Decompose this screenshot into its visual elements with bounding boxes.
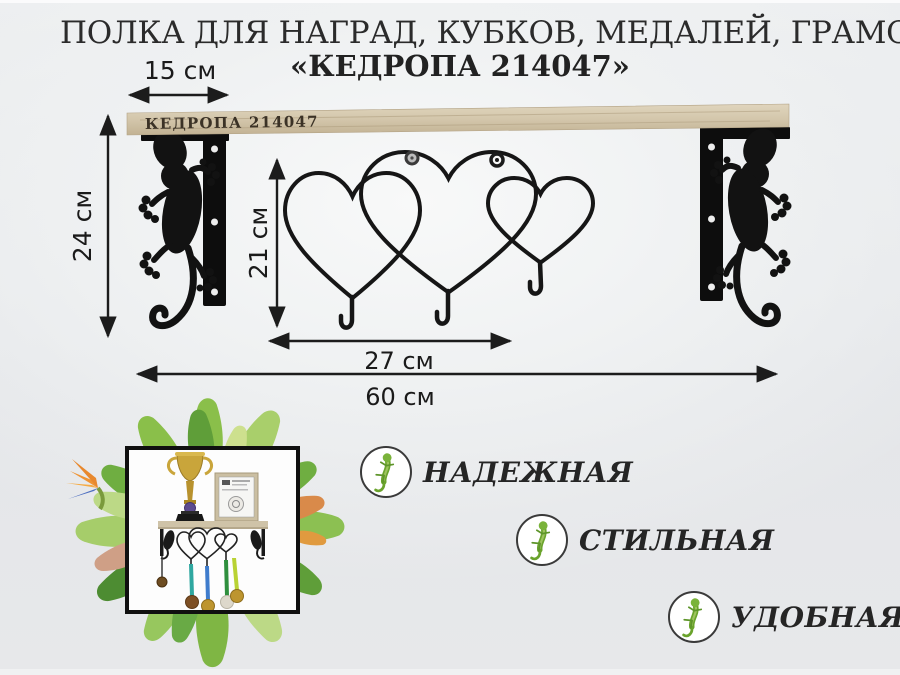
product-photo-scene xyxy=(129,450,296,610)
trophy-cup xyxy=(168,452,211,523)
diploma-frame xyxy=(215,473,258,521)
feature-convenient: УДОБНАЯ xyxy=(668,591,900,643)
shelf-board: КЕДРОПА 214047 xyxy=(127,104,789,135)
feature-label: СТИЛЬНАЯ xyxy=(579,524,774,557)
photo-left-bracket xyxy=(157,529,176,587)
medals xyxy=(186,558,244,610)
feature-label: УДОБНАЯ xyxy=(731,601,900,634)
product-infographic: ПОЛКА ДЛЯ НАГРАД, КУБКОВ, МЕДАЛЕЙ, ГРАМО… xyxy=(0,0,900,675)
feature-stylish: СТИЛЬНАЯ xyxy=(516,514,774,566)
feature-label: НАДЕЖНАЯ xyxy=(423,456,633,489)
hanger-hooks xyxy=(341,262,541,328)
product-photo xyxy=(125,446,300,614)
triple-heart-hooks-icon xyxy=(285,152,593,328)
gecko-icon xyxy=(516,514,568,566)
gecko-icon xyxy=(360,446,412,498)
gecko-icon xyxy=(668,591,720,643)
photo-right-bracket xyxy=(249,529,265,559)
feature-reliable: НАДЕЖНАЯ xyxy=(360,446,633,498)
board-brand-label: КЕДРОПА 214047 xyxy=(145,113,319,133)
